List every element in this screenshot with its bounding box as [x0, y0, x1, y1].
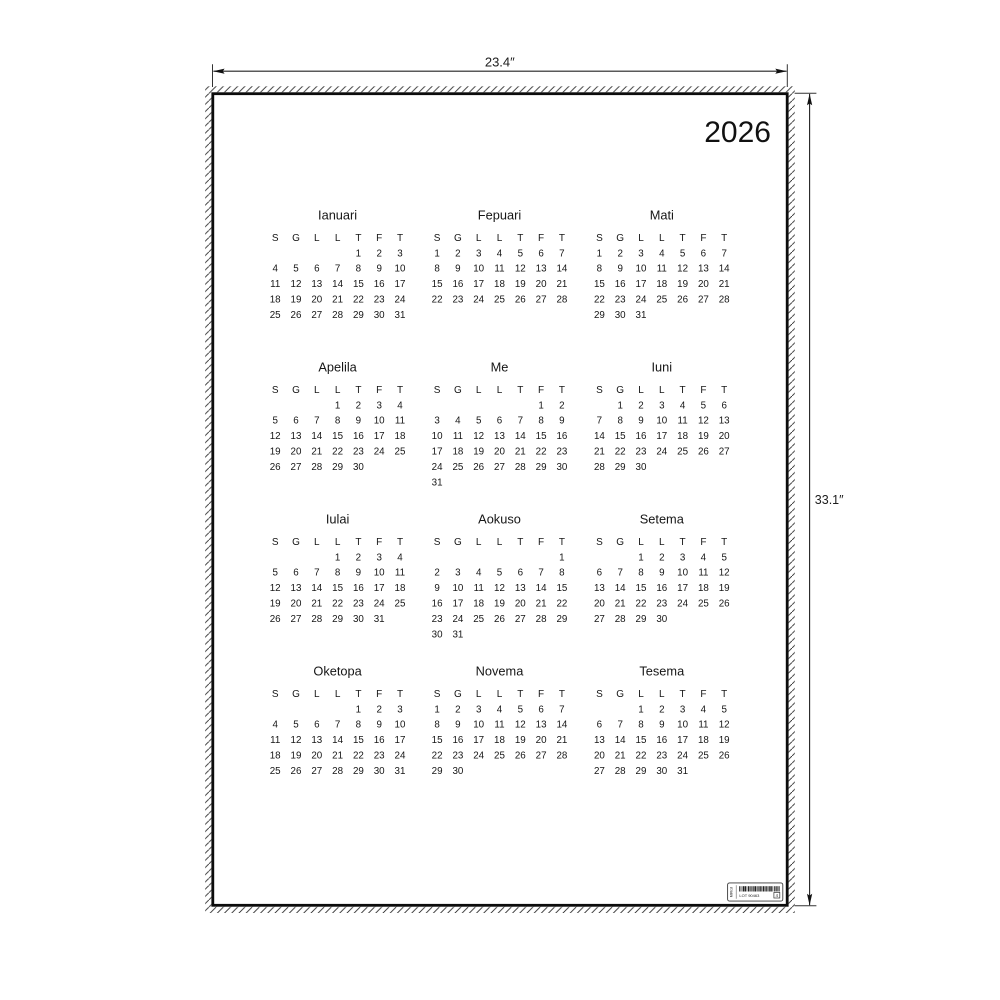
- svg-text:2026: 2026: [704, 116, 771, 149]
- svg-text:MiRcd: MiRcd: [729, 887, 733, 897]
- svg-text:33.1″: 33.1″: [815, 493, 844, 507]
- svg-text:LOT 90463: LOT 90463: [739, 893, 760, 898]
- svg-text:Me: Me: [491, 359, 509, 374]
- svg-text:1: 1: [559, 552, 564, 563]
- svg-text:Iulai: Iulai: [326, 511, 349, 526]
- svg-text:23.4″: 23.4″: [485, 55, 515, 70]
- svg-text:Apelila: Apelila: [318, 359, 357, 374]
- svg-text:Mati: Mati: [650, 207, 674, 222]
- svg-text:Aokuso: Aokuso: [478, 511, 521, 526]
- svg-text:Tesema: Tesema: [639, 663, 685, 678]
- svg-text:Oketopa: Oketopa: [313, 663, 362, 678]
- svg-text:Novema: Novema: [476, 663, 525, 678]
- svg-text:Ianuari: Ianuari: [318, 207, 357, 222]
- svg-text:Iuni: Iuni: [651, 359, 672, 374]
- svg-text:Fepuari: Fepuari: [478, 207, 521, 222]
- svg-text:293031: 293031: [594, 310, 647, 321]
- svg-text:282930: 282930: [594, 462, 647, 473]
- svg-text:31: 31: [432, 477, 443, 488]
- svg-text:Setema: Setema: [640, 511, 685, 526]
